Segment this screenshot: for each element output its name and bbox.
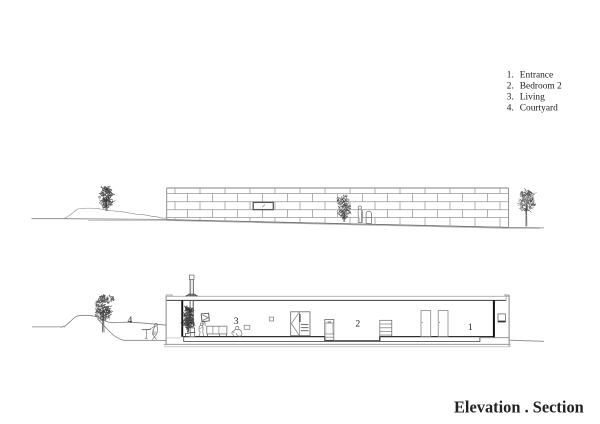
svg-text:3.: 3. — [507, 92, 514, 102]
svg-text:4: 4 — [128, 315, 133, 326]
svg-text:Entrance: Entrance — [520, 70, 553, 80]
svg-text:2.: 2. — [507, 81, 514, 91]
svg-text:4.: 4. — [507, 103, 514, 113]
svg-text:1: 1 — [468, 322, 473, 333]
svg-text:3: 3 — [234, 316, 239, 327]
svg-text:Bedroom 2: Bedroom 2 — [520, 81, 562, 91]
svg-text:Elevation . Section: Elevation . Section — [454, 397, 584, 416]
svg-text:2: 2 — [355, 319, 360, 330]
svg-text:1.: 1. — [507, 70, 514, 80]
svg-text:Living: Living — [520, 92, 545, 102]
svg-text:Courtyard: Courtyard — [520, 103, 558, 113]
